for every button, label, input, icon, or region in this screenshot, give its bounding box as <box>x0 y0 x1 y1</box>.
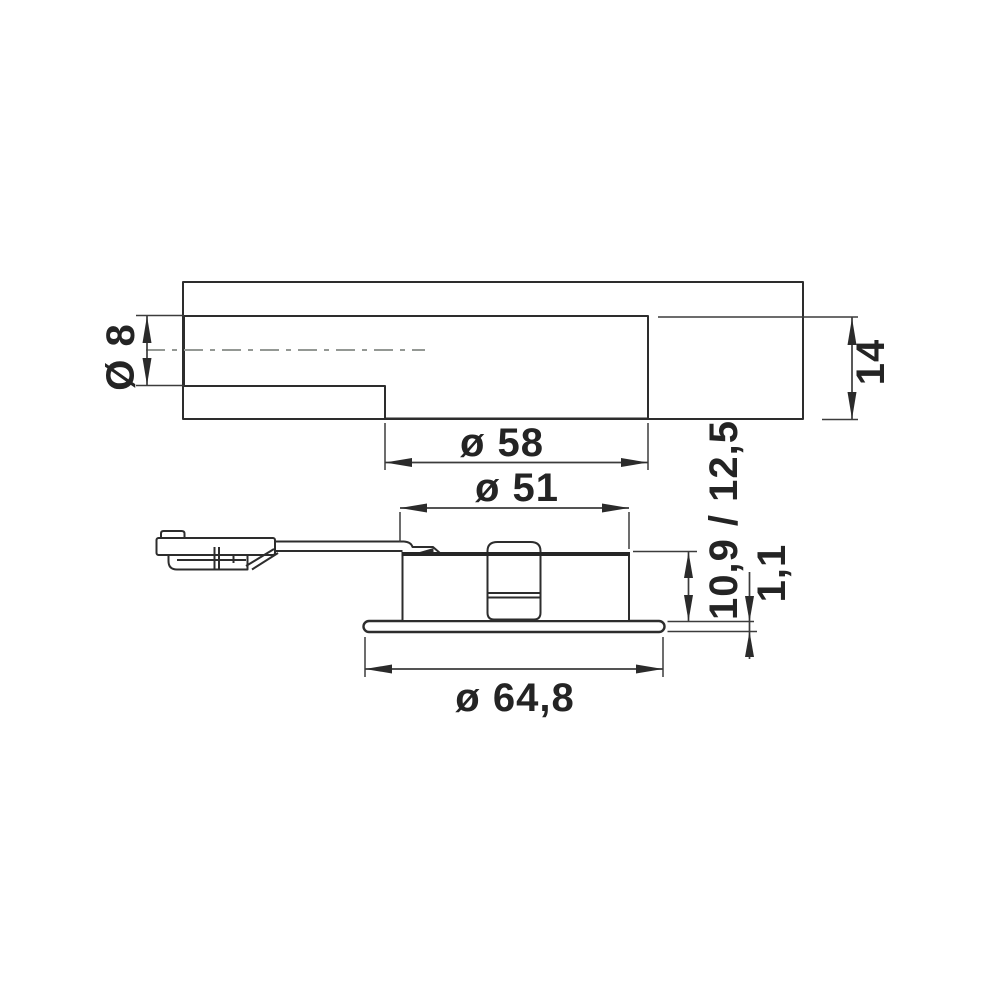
arrowhead-right <box>602 504 629 513</box>
dim-flange-diameter: ø 64,8 <box>365 637 663 720</box>
connector-body <box>157 538 276 555</box>
arrowhead-down <box>684 595 693 621</box>
arrowhead-up <box>143 316 152 343</box>
cable-clamp-wedge <box>418 548 434 553</box>
dim-label-cable-hole-diameter: Ø 8 <box>99 323 143 390</box>
dim-panel-thickness: 14 <box>658 317 893 420</box>
mounting-hole-cutout <box>184 316 648 419</box>
lens-barrel <box>488 554 541 620</box>
dim-label-panel-thickness: 14 <box>849 339 893 386</box>
dim-bore-diameter: ø 58 <box>385 421 648 470</box>
mounting-flange <box>364 621 665 632</box>
dim-body-diameter: ø 51 <box>400 466 629 549</box>
arrowhead-down <box>848 392 857 419</box>
dim-cable-hole-diameter: Ø 8 <box>99 316 184 391</box>
arrowhead-right <box>621 458 648 467</box>
dim-label-flange-diameter: ø 64,8 <box>455 676 574 720</box>
dim-label-recess-depth: 10,9 / 12,5 <box>702 420 746 620</box>
dim-label-bore-diameter: ø 58 <box>460 421 544 465</box>
connector-plug <box>157 531 279 570</box>
dim-label-flange-thickness: 1,1 <box>750 544 794 603</box>
dimension-drawing: Ø 8 14 ø 58 <box>0 0 1000 1000</box>
connector-latch-tab <box>161 531 185 538</box>
connector-lower-housing <box>169 555 248 570</box>
arrowhead-left <box>400 504 427 513</box>
panel-cross-section-view: Ø 8 14 ø 58 <box>99 282 893 470</box>
arrowhead-down <box>143 358 152 385</box>
arrowhead-up <box>745 632 754 658</box>
arrowhead-left <box>365 665 392 674</box>
dim-label-body-diameter: ø 51 <box>475 466 559 510</box>
technical-drawing-canvas: Ø 8 14 ø 58 <box>0 0 1000 1000</box>
arrowhead-up <box>684 552 693 578</box>
dim-recess-depth: 10,9 / 12,5 <box>633 420 754 622</box>
arrowhead-left <box>385 458 412 467</box>
cable <box>276 542 441 554</box>
arrowhead-right <box>636 665 663 674</box>
